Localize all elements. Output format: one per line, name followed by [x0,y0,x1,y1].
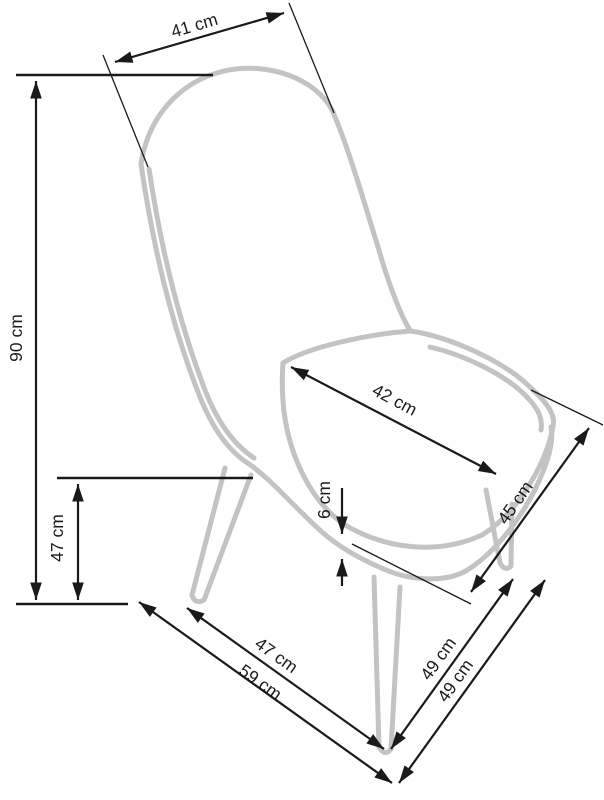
backrest-width-extension-left [103,55,148,167]
backrest-width-label: 41 cm [169,9,220,42]
backrest-left-edge-inner [149,169,254,458]
dimension-annotations [16,3,603,783]
front-right-leg [374,577,400,753]
front-left-leg [192,468,251,602]
backrest-outline [141,68,411,331]
side-leg-span-inner-dimension [391,579,513,749]
diagram-canvas: 41 cm 90 cm 47 cm 42 cm 6 cm 45 cm 47 cm… [0,0,604,800]
seat-width-label: 42 cm [369,380,420,420]
chair-outline [141,68,554,752]
seat-height-label: 47 cm [47,514,67,562]
backrest-width-extension-right [289,3,334,113]
seat-inner-edge [430,347,541,430]
total-height-label: 90 cm [6,314,26,362]
front-leg-span-dimension [187,608,384,749]
seat-thickness-label: 6 cm [314,481,334,519]
chair-dimension-diagram: 41 cm 90 cm 47 cm 42 cm 6 cm 45 cm 47 cm… [0,0,604,800]
side-leg-span-outer-dimension [399,580,545,783]
seat-width-dimension [291,367,496,474]
